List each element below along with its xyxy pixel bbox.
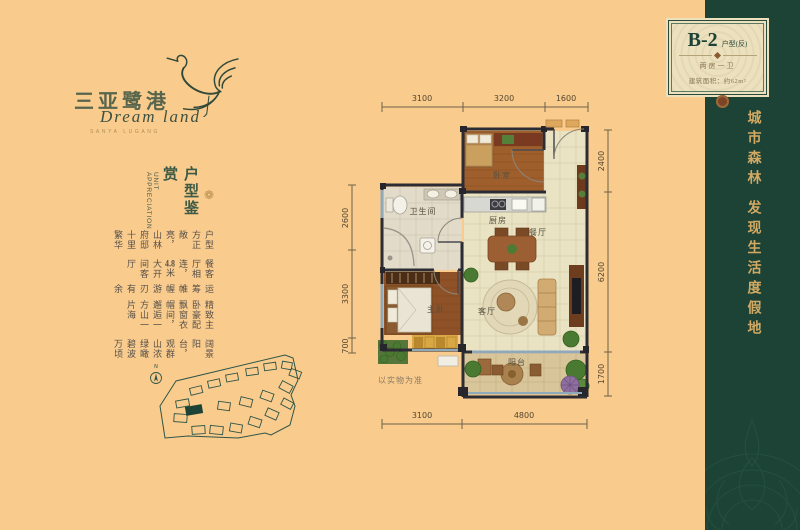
copy-line-4: 精致主卧豪配飘窗衣帽间，邂逅一方山一片海: [83, 300, 216, 339]
copy-line-2-number: 4.8: [165, 259, 175, 268]
copy-line-3: 运筹帷幄游刃有余: [83, 284, 216, 300]
copy-line-1: 户型方正敞亮，山林府邸十里繁华: [83, 230, 216, 259]
dim-left-1: 2600: [341, 208, 350, 228]
diamond-icon: [714, 52, 721, 59]
dim-right-1: 2400: [597, 151, 606, 171]
site-boundary: [160, 355, 298, 438]
unit-code: B-2: [688, 30, 718, 50]
dim-bottom-1: 3100: [412, 411, 432, 420]
slogan-line-2: 发现生活度假地: [743, 200, 763, 340]
copy-line-2: 餐客厅相连，4.8米大开间客厅: [83, 259, 216, 284]
slogan-line-1: 城市森林: [743, 110, 763, 190]
appreciation-subtitle: UNIT APPRECIATION: [145, 172, 159, 230]
ac-platforms: [546, 120, 579, 127]
copy-line-2-pre: 餐客厅相连，: [178, 259, 214, 279]
unit-rooms: 两房一卫: [700, 61, 736, 71]
badge-divider: [679, 53, 757, 58]
mandala-ornament: [705, 418, 800, 530]
floor-plan: 3100 3200 1600 3100 4800 2600 3300 700 2…: [340, 88, 660, 473]
unit-area: 建筑面积：约62m²: [689, 75, 747, 85]
dim-top-2: 3200: [494, 94, 514, 103]
room-label-bathroom: 卫生间: [410, 206, 437, 216]
unit-type-badge: B-2 户型(反) 两房一卫 建筑面积：约62m²: [668, 20, 767, 95]
dim-right-2: 6200: [597, 262, 606, 282]
brochure-page: 城市森林 发现生活度假地 B-2 户型(反) 两房一卫 建筑面积：约62m²: [0, 0, 800, 530]
dim-left-2: 3300: [341, 284, 350, 304]
room-label-bedroom: 卧室: [493, 170, 511, 180]
brand-logo: 三亚鹭港 Dream land SANYA LUGANG: [62, 53, 242, 145]
disclaimer-text: 以实物为准: [378, 375, 423, 385]
floor-plan-floors: [378, 131, 588, 395]
unit-appreciation-block: ❁ 户型鉴赏 UNIT APPRECIATION 户型方正敞亮，山林府邸十里繁华…: [74, 166, 216, 368]
north-label: N: [154, 364, 158, 370]
dim-top-3: 1600: [556, 94, 576, 103]
flower-icon: ❁: [201, 188, 216, 202]
site-plan: N: [146, 350, 336, 485]
dim-top-1: 3100: [412, 94, 432, 103]
appreciation-title-column: ❁ 户型鉴赏 UNIT APPRECIATION: [84, 166, 216, 230]
room-label-dining: 餐厅: [529, 228, 547, 237]
unit-type-badge-inner: B-2 户型(反) 两房一卫 建筑面积：约62m²: [671, 23, 764, 92]
dim-right-3: 1700: [597, 364, 606, 384]
north-compass-icon: N: [151, 364, 162, 384]
room-label-living: 客厅: [478, 306, 496, 316]
dim-left-3: 700: [341, 338, 350, 353]
site-buildings: [174, 361, 302, 435]
room-label-balcony: 阳台: [508, 357, 526, 367]
room-label-master: 主卧: [427, 304, 445, 314]
dim-bottom-2: 4800: [514, 411, 534, 420]
appreciation-title: 户型鉴赏: [159, 166, 201, 230]
unit-type-label: 户型(反): [722, 39, 748, 49]
room-label-kitchen: 厨房: [489, 215, 507, 225]
rosette-icon: [716, 95, 729, 108]
brand-name-en: Dream land: [100, 107, 201, 127]
brand-tagline: SANYA LUGANG: [90, 129, 160, 135]
